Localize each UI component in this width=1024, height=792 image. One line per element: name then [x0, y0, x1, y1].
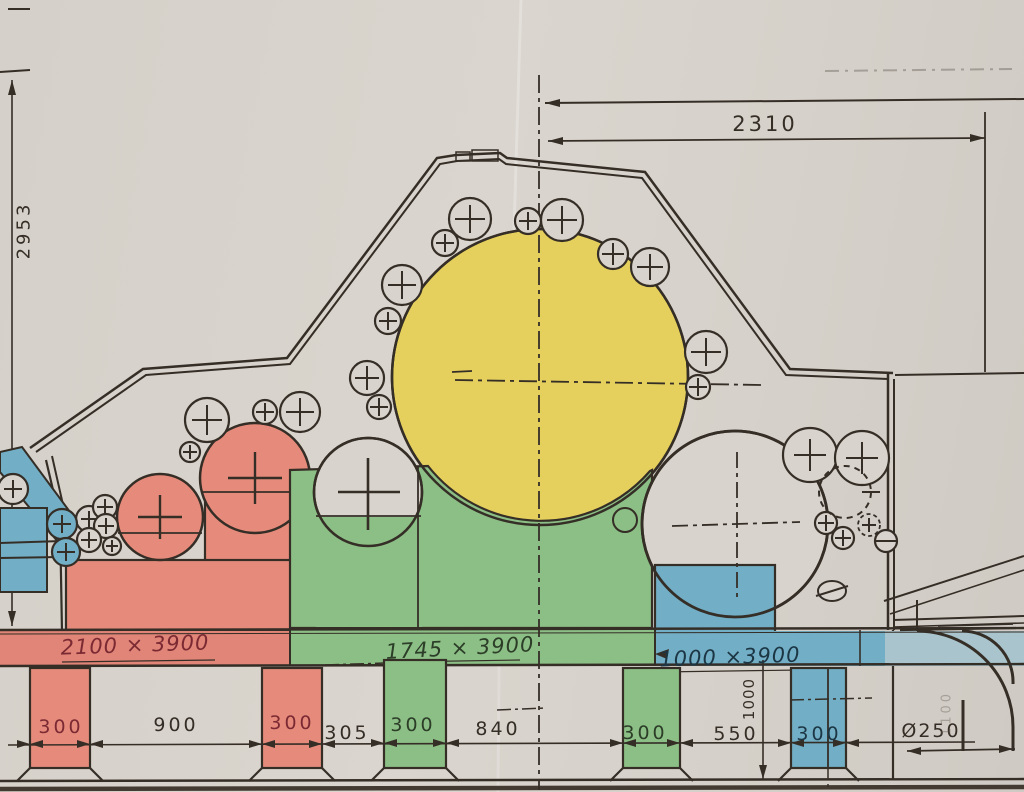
dim-300-green2: 300 — [616, 722, 674, 744]
dim-300-green1: 300 — [384, 714, 442, 736]
dim-300-blue: 300 — [792, 723, 846, 745]
dim-vertical-1000: 1000 — [740, 664, 758, 734]
dim-300-red1: 300 — [32, 716, 90, 738]
dim-faint-1100: 1100 — [940, 684, 955, 744]
dim-left-2953: 2953 — [14, 195, 35, 267]
dim-300-red2: 300 — [262, 712, 322, 734]
dim-840: 840 — [468, 718, 528, 740]
dim-900: 900 — [140, 714, 212, 736]
dim-top-2310: 2310 — [710, 112, 820, 136]
dim-305: 305 — [320, 722, 374, 744]
drawing-canvas — [0, 0, 1024, 792]
engineering-drawing: 2310 2953 2100 × 3900 1745 × 3900 1000 ×… — [0, 0, 1024, 792]
